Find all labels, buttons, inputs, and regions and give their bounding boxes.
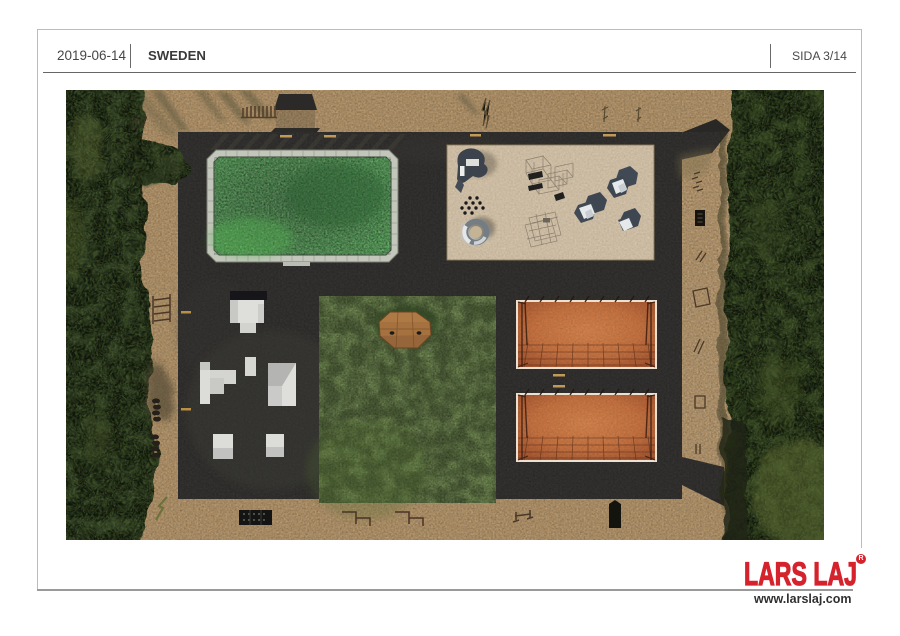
svg-text:LARS LAJ: LARS LAJ [744, 556, 857, 588]
